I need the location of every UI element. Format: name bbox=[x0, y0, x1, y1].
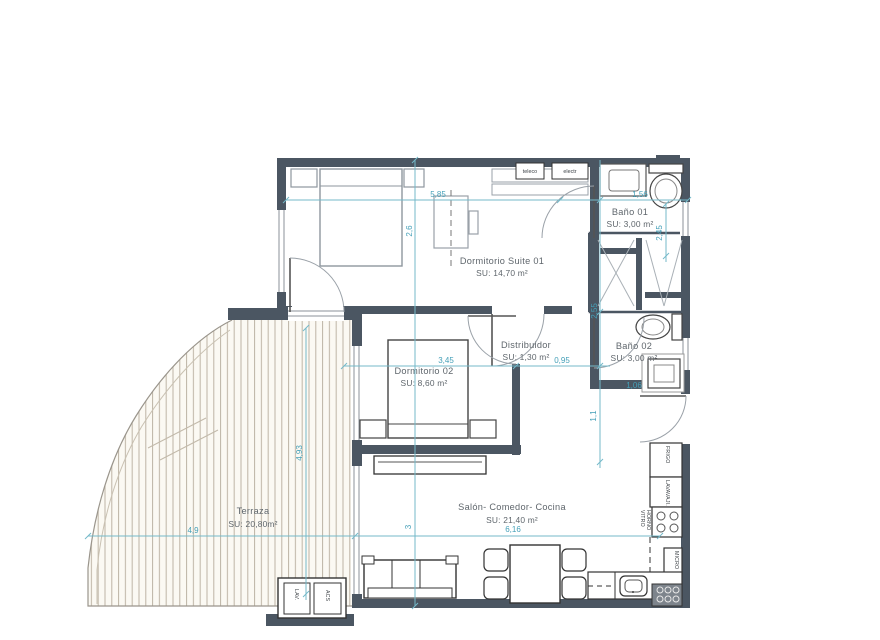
dim-hall-height: 1,1 bbox=[589, 410, 598, 422]
teleco-label: teleco bbox=[523, 169, 537, 175]
dim-salon-height: 3 bbox=[404, 524, 413, 529]
kitchen: FRIGO LAVAVAJI. VITRO HORNO MICRO bbox=[588, 443, 682, 606]
dorm2-nightstand-right bbox=[470, 420, 496, 438]
bano1-area: SU: 3,00 m² bbox=[607, 219, 654, 229]
salon-label: Salón- Comedor- Cocina bbox=[458, 502, 566, 512]
acs-label: ACS bbox=[324, 590, 330, 602]
dorm2-area: SU: 8,60 m² bbox=[401, 378, 448, 388]
dim-shower-height: 2,55 bbox=[590, 303, 599, 319]
fridge-label: FRIGO bbox=[664, 446, 670, 463]
terraza-room: Terraza SU: 20,80m² LAV. ACS bbox=[88, 320, 362, 626]
dim-salon-width: 6,16 bbox=[505, 525, 521, 534]
wall-dorm2-salon bbox=[352, 445, 521, 454]
dim-bano1-height: 2,45 bbox=[655, 225, 664, 241]
distribuidor-room: Distribuidor SU: 1,30 m² bbox=[468, 314, 551, 366]
dim-dorm2-width: 3,45 bbox=[438, 356, 454, 365]
bano1-label: Baño 01 bbox=[612, 207, 648, 217]
wall-h-mid bbox=[343, 306, 492, 314]
shower-bar-right bbox=[645, 292, 683, 298]
bano2-area: SU: 3,00 m² bbox=[611, 353, 658, 363]
kitchen-sink bbox=[620, 576, 647, 596]
electr-label: electr bbox=[563, 169, 576, 175]
dim-terraza-height: 4,93 bbox=[295, 445, 304, 461]
utility-closet: LAV. ACS bbox=[266, 578, 354, 626]
bano1-basin bbox=[609, 170, 639, 191]
wall-top-marker bbox=[656, 155, 680, 163]
suite-room: teleco electr Dormitorio Suite 01 SU: 14… bbox=[290, 163, 588, 312]
suite-desk-chair bbox=[469, 211, 478, 234]
dim-bano2-width: 1,06 bbox=[626, 381, 642, 390]
suite-area: SU: 14,70 m² bbox=[476, 268, 528, 278]
suite-label: Dormitorio Suite 01 bbox=[460, 256, 544, 266]
shower-wall-divider bbox=[636, 238, 642, 310]
salon-dining-set bbox=[484, 545, 586, 603]
distribuidor-area: SU: 1,30 m² bbox=[503, 352, 550, 362]
dim-terraza-width: 4,9 bbox=[187, 526, 199, 535]
salon-sofa bbox=[362, 556, 458, 598]
suite-bed bbox=[320, 169, 402, 266]
dorm2-room: Dormitorio 02 SU: 8,60 m² bbox=[360, 340, 496, 438]
hob-corner-unit bbox=[652, 584, 682, 606]
floor-plan-canvas: Terraza SU: 20,80m² LAV. ACS bbox=[0, 0, 880, 640]
dishwasher-label: LAVAVAJI. bbox=[664, 480, 670, 506]
floor-plan-drawing: Terraza SU: 20,80m² LAV. ACS bbox=[0, 0, 880, 640]
oven-hob-unit bbox=[652, 507, 682, 537]
suite-nightstand-left bbox=[291, 169, 317, 187]
bano2-label: Baño 02 bbox=[616, 341, 652, 351]
distribuidor-label: Distribuidor bbox=[501, 340, 551, 350]
dining-chair bbox=[484, 577, 508, 599]
vitro-label: VITRO bbox=[639, 510, 645, 527]
bano1-toilet-tank bbox=[649, 164, 683, 173]
dorm2-bed bbox=[388, 340, 468, 438]
bano2-sink bbox=[648, 359, 680, 388]
dorm2-nightstand-left bbox=[360, 420, 386, 438]
salon-sideboard bbox=[374, 456, 486, 474]
dim-suite-width: 5,85 bbox=[430, 190, 446, 199]
terraza-area: SU: 20,80m² bbox=[228, 519, 277, 529]
dorm2-label: Dormitorio 02 bbox=[394, 366, 453, 376]
dining-chair bbox=[562, 549, 586, 571]
horno-label: HORNO bbox=[645, 510, 651, 530]
bano2-toilet-tank bbox=[672, 314, 682, 340]
washer-label: LAV. bbox=[293, 589, 299, 600]
dining-chair bbox=[562, 577, 586, 599]
dim-bano1-width: 1,56 bbox=[632, 190, 648, 199]
micro-label: MICRO bbox=[673, 551, 679, 569]
wall-h-right bbox=[544, 306, 572, 314]
terraza-label: Terraza bbox=[237, 506, 270, 516]
dim-suite-height: 2,6 bbox=[405, 225, 414, 237]
suite-nightstand-right bbox=[404, 169, 424, 187]
dining-table bbox=[510, 545, 560, 603]
salon-area: SU: 21,40 m² bbox=[486, 515, 538, 525]
wall-dorm2-right bbox=[512, 364, 520, 455]
dining-chair bbox=[484, 549, 508, 571]
entrance-door-arc bbox=[640, 396, 686, 442]
dim-distribuidor-width: 0,95 bbox=[554, 356, 570, 365]
terraza-decking bbox=[88, 320, 362, 606]
